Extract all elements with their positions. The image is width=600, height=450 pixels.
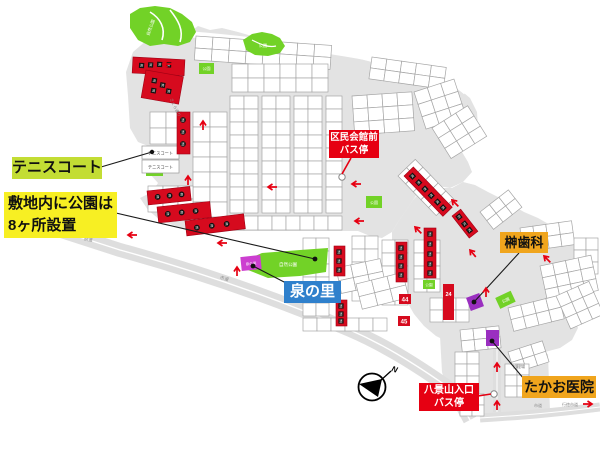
lot-cell <box>294 96 308 109</box>
compass-north-icon: N <box>359 364 399 400</box>
lot-cell <box>210 127 227 142</box>
lot-cell <box>414 74 430 87</box>
callout-sakaki-dental: 榊歯科 <box>500 232 548 253</box>
lot-cell <box>314 44 332 57</box>
lot-cell <box>382 93 398 107</box>
housing-grid <box>294 96 322 213</box>
lot-cell <box>230 174 244 187</box>
lot-cell <box>398 105 414 119</box>
callout-parks-note-line2: 8ヶ所設置 <box>8 215 113 237</box>
sold-cluster: 済済済 <box>334 246 345 276</box>
lot-cell <box>276 161 290 174</box>
lot-cell <box>193 172 210 187</box>
housing-grid <box>262 96 290 213</box>
lot-cell <box>547 234 562 248</box>
lot-cell <box>262 109 276 122</box>
lot-cell <box>276 148 290 161</box>
lot-cell <box>280 64 296 78</box>
lot-cell <box>455 352 467 364</box>
lot-cell <box>353 108 369 122</box>
lot-cell <box>560 233 575 247</box>
lot-cell <box>467 364 479 376</box>
lot-cell <box>210 187 227 202</box>
callout-parks-note-line1: 敷地内に公園は <box>8 193 113 215</box>
dot-takao <box>490 339 495 344</box>
lot-cell <box>150 112 166 128</box>
lot-cell <box>296 78 312 92</box>
lot-cell <box>264 78 280 92</box>
lot-cell <box>210 142 227 157</box>
lot-cell <box>308 174 322 187</box>
lot-cell <box>264 64 280 78</box>
sold-cluster: 済済済済済 <box>424 228 436 278</box>
lot-cell <box>193 187 210 202</box>
dot-izumi <box>251 264 256 269</box>
compass-n-label: N <box>390 364 398 374</box>
lot-cell <box>359 318 373 331</box>
lot-cell <box>276 135 290 148</box>
lot-cell <box>308 109 322 122</box>
housing-grid <box>230 96 258 213</box>
lot-cell <box>276 200 290 213</box>
lot-cell <box>505 375 517 386</box>
lot-cell <box>210 202 227 217</box>
lot-cell <box>262 148 276 161</box>
lot-cell <box>258 216 272 230</box>
lot-cell <box>294 200 308 213</box>
lot-cell <box>280 78 296 92</box>
lot-cell <box>248 78 264 92</box>
lot-cell <box>455 364 467 376</box>
lot-24-strip <box>443 284 454 320</box>
lot-cell <box>384 70 400 83</box>
callout-hakkei-line1: 八景山入口 <box>419 384 479 397</box>
dot-tennis <box>150 150 154 154</box>
lot-cell <box>244 148 258 161</box>
lot-cell <box>308 187 322 200</box>
lot-cell <box>272 216 286 230</box>
road-label-gyotoku: 行徳市道 <box>562 401 578 407</box>
lot-cell <box>193 157 210 172</box>
lot-cell <box>365 236 378 249</box>
lot-cell <box>193 127 210 142</box>
lot-cell <box>276 122 290 135</box>
lot-cell <box>276 187 290 200</box>
lot-cell <box>230 109 244 122</box>
lot-cell <box>244 122 258 135</box>
lot-cell <box>399 118 415 132</box>
lot-cell <box>368 107 384 121</box>
callout-kumin-line2: バス停 <box>329 144 379 157</box>
lot-cell <box>248 64 264 78</box>
direction-arrow-shape <box>128 232 137 238</box>
callout-hakkei-line2: バス停 <box>419 397 479 410</box>
callout-kumin-bus-stop: 区民会館前 バス停 <box>329 130 379 158</box>
lot-cell <box>230 148 244 161</box>
lot-45-label: 45 <box>401 320 408 326</box>
lot-cell <box>456 310 469 322</box>
park-plot-1-label: 公園 <box>203 65 211 71</box>
lot-cell <box>262 174 276 187</box>
lot-cell <box>230 200 244 213</box>
lot-cell <box>382 240 395 253</box>
lot-cell <box>312 64 328 78</box>
lot-cell <box>461 340 475 352</box>
housing-grid <box>193 112 227 217</box>
lot-cell <box>276 109 290 122</box>
lot-cell <box>276 174 290 187</box>
lot-cell <box>294 174 308 187</box>
nature-park-central-label: 自然公園 <box>279 261 297 268</box>
lot-cell <box>559 221 574 235</box>
lot-cell <box>262 200 276 213</box>
park-plot-4-label: 公園 <box>425 282 433 287</box>
lot-cell <box>194 48 212 61</box>
direction-arrow-shape <box>218 240 227 246</box>
lot-cell <box>211 49 229 62</box>
lot-cell <box>382 253 395 266</box>
lot-cell <box>367 94 383 108</box>
lot-cell <box>244 161 258 174</box>
lot-cell <box>294 122 308 135</box>
lot-cell <box>574 238 586 250</box>
lot-cell <box>232 78 248 92</box>
lot-cell <box>230 96 244 109</box>
lot-cell <box>369 68 385 81</box>
callout-izumi-no-sato: 泉の里 <box>284 281 341 303</box>
lot-cell <box>262 135 276 148</box>
lot-cell <box>230 122 244 135</box>
lot-cell <box>300 216 314 230</box>
direction-arrow <box>234 267 240 276</box>
lot-cell <box>312 78 328 92</box>
lot-cell <box>294 148 308 161</box>
lot-cell <box>339 278 356 294</box>
lot-cell <box>228 50 246 63</box>
housing-grid <box>232 64 328 92</box>
lot-cell <box>294 109 308 122</box>
lot-cell <box>303 318 317 331</box>
lot-cell <box>467 352 479 364</box>
callout-kumin-line1: 区民会館前 <box>329 131 379 144</box>
lot-cell <box>297 43 315 56</box>
sold-cluster: 済済済 <box>336 300 347 326</box>
park-plot-3-label: 公園 <box>370 199 378 205</box>
lot-cell <box>308 135 322 148</box>
lot-cell <box>308 122 322 135</box>
lot-cell <box>230 161 244 174</box>
callout-tennis-court: テニスコート <box>12 157 102 179</box>
lot-cell <box>397 92 413 106</box>
lot-cell <box>262 96 276 109</box>
sold-cluster: 済済済 <box>177 112 190 154</box>
lot-cell <box>326 187 342 200</box>
lot-cell <box>308 96 322 109</box>
lot-cell <box>326 96 342 109</box>
lot-cell <box>373 318 387 331</box>
lot-cell <box>244 216 258 230</box>
sold-cluster: 済済済済 <box>396 242 407 282</box>
lot-cell <box>286 216 300 230</box>
lot-cell <box>460 329 474 341</box>
lot-cell <box>230 135 244 148</box>
lot-cell <box>326 161 342 174</box>
lot-cell <box>317 318 331 331</box>
lot-cell <box>294 161 308 174</box>
lot-cell <box>244 96 258 109</box>
callout-hakkei-bus-stop: 八景山入口 バス停 <box>419 383 479 411</box>
lot-cell <box>473 327 487 339</box>
lot-cell <box>326 109 342 122</box>
lot-cell <box>262 161 276 174</box>
estate-map: 自然公園 公園 公園 公園 公園 公園 公園 自然公園 泉の里 処理場 テニスコ <box>0 0 600 450</box>
takao-building <box>486 330 499 346</box>
lot-cell <box>326 200 342 213</box>
direction-arrow <box>128 232 137 238</box>
lot-cell <box>232 64 248 78</box>
lot-cell <box>276 96 290 109</box>
lot-cell <box>430 310 443 322</box>
lot-cell <box>210 157 227 172</box>
lot-cell <box>316 303 329 316</box>
lot-cell <box>244 135 258 148</box>
lot-44-label: 44 <box>402 298 409 304</box>
lot-cell <box>210 112 227 127</box>
dot-parks-note <box>313 257 318 262</box>
lot-cell <box>244 200 258 213</box>
lot-cell <box>294 135 308 148</box>
lot-cell <box>328 216 342 230</box>
lot-cell <box>308 148 322 161</box>
lot-cell <box>430 298 443 310</box>
lot-cell <box>212 37 230 50</box>
callout-parks-note: 敷地内に公園は 8ヶ所設置 <box>4 192 117 238</box>
lot-cell <box>296 64 312 78</box>
lot-cell <box>586 238 598 250</box>
lot-cell <box>210 172 227 187</box>
hakkei-bus-stop-marker <box>491 391 497 397</box>
lot-cell <box>303 303 316 316</box>
lot-cell <box>193 142 210 157</box>
direction-arrow-shape <box>234 267 240 276</box>
lot-cell <box>262 187 276 200</box>
kumin-bus-stop-marker <box>339 174 345 180</box>
direction-arrow <box>218 240 227 246</box>
lot-cell <box>244 109 258 122</box>
lot-cell <box>314 216 328 230</box>
lot-cell <box>308 200 322 213</box>
road-label-shido-2: 市道 <box>534 402 542 408</box>
lot-cell <box>352 249 365 262</box>
housing-grid <box>352 92 415 135</box>
lot-cell <box>195 36 213 49</box>
lot-cell <box>230 187 244 200</box>
callout-takao-clinic: たかお医院 <box>522 376 596 398</box>
lot-cell <box>352 95 368 109</box>
lot-cell <box>244 187 258 200</box>
lot-cell <box>262 122 276 135</box>
lot-cell <box>150 128 166 144</box>
lot-cell <box>352 236 365 249</box>
lot-cell <box>399 72 415 85</box>
lot-cell <box>505 386 517 397</box>
lot-cell <box>383 106 399 120</box>
lot-cell <box>384 119 400 133</box>
lot-cell <box>244 174 258 187</box>
housing-grid <box>230 216 342 230</box>
lot-24-label: 24 <box>445 292 452 298</box>
lot-cell <box>308 161 322 174</box>
dot-sakaki <box>472 300 477 305</box>
lot-cell <box>294 187 308 200</box>
